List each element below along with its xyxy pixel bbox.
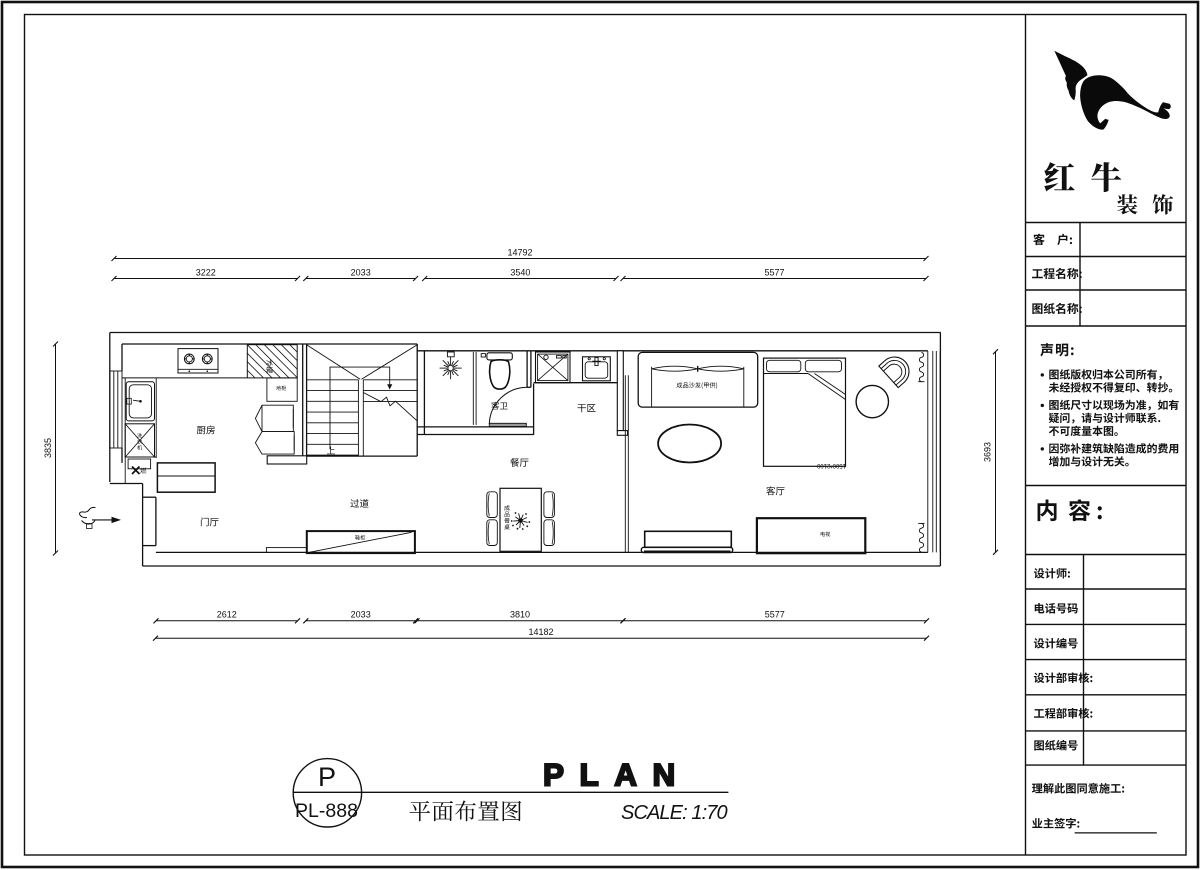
- svg-text:14182: 14182: [528, 627, 553, 637]
- svg-text:5577: 5577: [765, 610, 785, 620]
- svg-text:3810: 3810: [510, 610, 530, 620]
- svg-text:PLAN: PLAN: [543, 757, 691, 793]
- svg-text:5577: 5577: [764, 267, 784, 277]
- svg-text:3222: 3222: [196, 267, 216, 277]
- svg-text:3540: 3540: [510, 267, 530, 277]
- svg-text:2033: 2033: [351, 267, 371, 277]
- svg-text:1500*2100: 1500*2100: [816, 462, 846, 468]
- svg-text:14792: 14792: [507, 247, 532, 257]
- svg-text:2612: 2612: [217, 610, 237, 620]
- svg-text:P: P: [318, 762, 336, 792]
- svg-text:PL-888: PL-888: [295, 800, 358, 822]
- svg-text:3835: 3835: [43, 438, 53, 458]
- svg-text:2033: 2033: [351, 610, 371, 620]
- svg-text:3693: 3693: [983, 442, 993, 462]
- svg-text:SCALE: 1:70: SCALE: 1:70: [621, 802, 728, 824]
